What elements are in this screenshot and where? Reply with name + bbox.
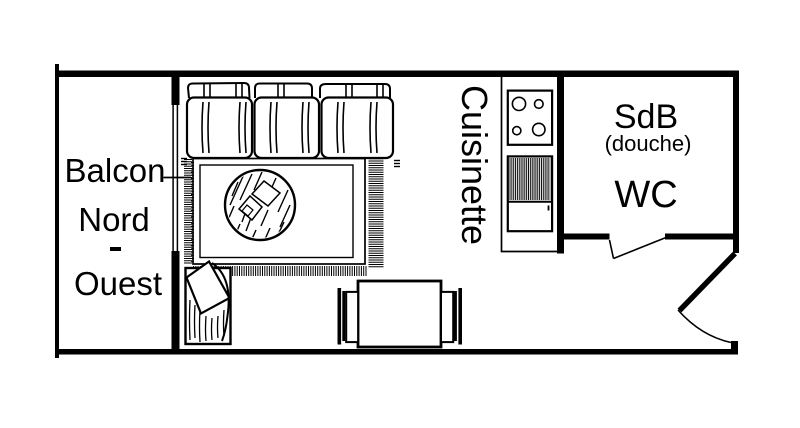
svg-text:WC: WC [614, 174, 677, 216]
svg-text:(douche): (douche) [605, 131, 692, 156]
svg-text:Ouest: Ouest [74, 265, 162, 302]
svg-text:Balcon: Balcon [65, 152, 166, 189]
svg-text:Cuisinette: Cuisinette [454, 85, 495, 245]
svg-text:Nord: Nord [78, 201, 150, 238]
